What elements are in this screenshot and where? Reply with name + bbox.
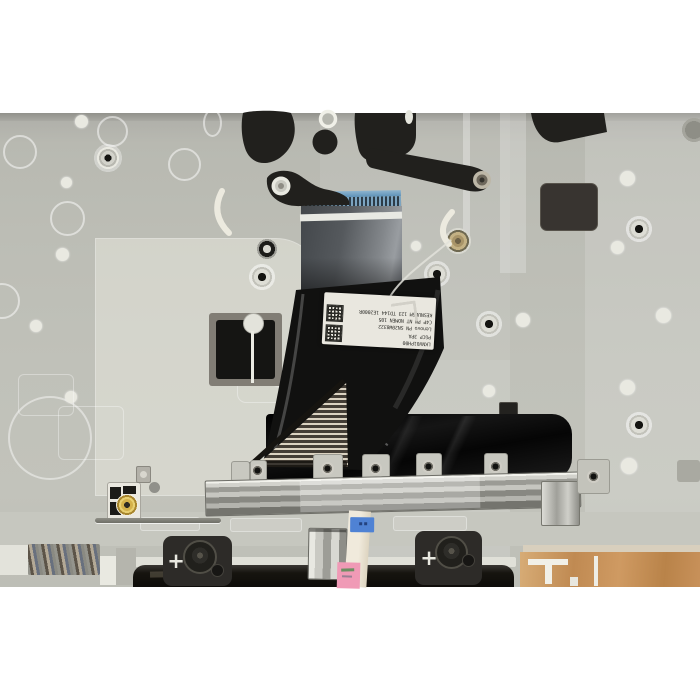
post-circle (140, 471, 147, 478)
bracket-dot (462, 554, 475, 567)
bracket-dot (211, 564, 224, 577)
part-label: LKNV01PH00 PGCP 3PA Lenovo PN SN20W8322 … (322, 292, 437, 350)
white-dot (483, 385, 495, 397)
copper-mark-line (594, 556, 598, 586)
film-seam-bright (500, 113, 526, 273)
blue-tape (350, 517, 374, 532)
gray-dot (149, 482, 160, 493)
white-dot (621, 458, 637, 474)
white-dot (411, 241, 421, 251)
bottom-ribbon (336, 510, 377, 590)
tab-screw (320, 461, 335, 476)
black-pad (540, 183, 598, 231)
film-bubble-ring (50, 201, 85, 236)
metal-bar-end (541, 481, 580, 526)
gold-screw (443, 226, 473, 256)
panel-notch (677, 460, 700, 482)
pink-label-mark (342, 575, 352, 577)
film-bubble-ring (3, 135, 37, 169)
strip-slot (230, 518, 302, 532)
white-dot (620, 380, 635, 395)
blue-tape-mark (364, 522, 367, 525)
white-tab (100, 556, 116, 585)
pink-label-mark (341, 568, 354, 571)
gray-boss (681, 117, 700, 143)
label-qr-column (325, 295, 344, 342)
qr-code (326, 304, 344, 322)
metal-post (136, 466, 151, 483)
photo-canvas: + + LKNV01PH00 PGCP 3PA Lenovo PN SN20W8… (0, 0, 700, 700)
white-dot (30, 320, 42, 332)
film-seam-thin (463, 113, 470, 238)
white-dot (516, 313, 530, 327)
copper-mark-tick (570, 577, 578, 586)
blue-tape-mark (359, 522, 362, 525)
corner-mark (391, 300, 419, 324)
tab-screw (585, 468, 602, 485)
qr-code (325, 324, 343, 342)
screw-hole (624, 410, 654, 440)
white-dot (611, 241, 624, 254)
film-bubble-ring (203, 109, 222, 137)
metal-bar-tape (300, 476, 481, 512)
screw-hole (92, 142, 124, 174)
gold-coax-connector (116, 494, 138, 516)
bracket-left: + (163, 536, 232, 586)
white-dot (61, 177, 72, 188)
tab-screw (251, 464, 264, 477)
copper-mark-t-stem (545, 565, 552, 584)
white-dot (656, 308, 671, 323)
white-dot (56, 248, 69, 261)
screw-hole (256, 238, 278, 260)
screw-hole (474, 309, 504, 339)
screw-hole (247, 262, 277, 292)
foil-tape (28, 544, 100, 575)
slot-line (95, 518, 221, 523)
bracket-right: + (415, 531, 482, 585)
pad-line (251, 331, 254, 383)
screw-hole (624, 214, 654, 244)
tab-screw (488, 459, 503, 474)
white-block (0, 545, 28, 575)
embossed-outline (58, 406, 124, 460)
label-text-column: LKNV01PH00 PGCP 3PA Lenovo PN SN20W8322 … (345, 296, 433, 346)
film-bubble-ring (168, 148, 201, 181)
tab-screw (421, 459, 436, 474)
pink-label (337, 562, 361, 589)
white-dot (75, 115, 88, 128)
screw-hole (159, 426, 193, 460)
white-dot (620, 171, 635, 186)
screw-hole (423, 260, 451, 288)
tab-screw (368, 461, 383, 476)
coax-connector-module (107, 482, 141, 521)
module-black-slot (123, 486, 136, 494)
strip-slot (393, 516, 467, 531)
screw-tab (577, 459, 610, 494)
